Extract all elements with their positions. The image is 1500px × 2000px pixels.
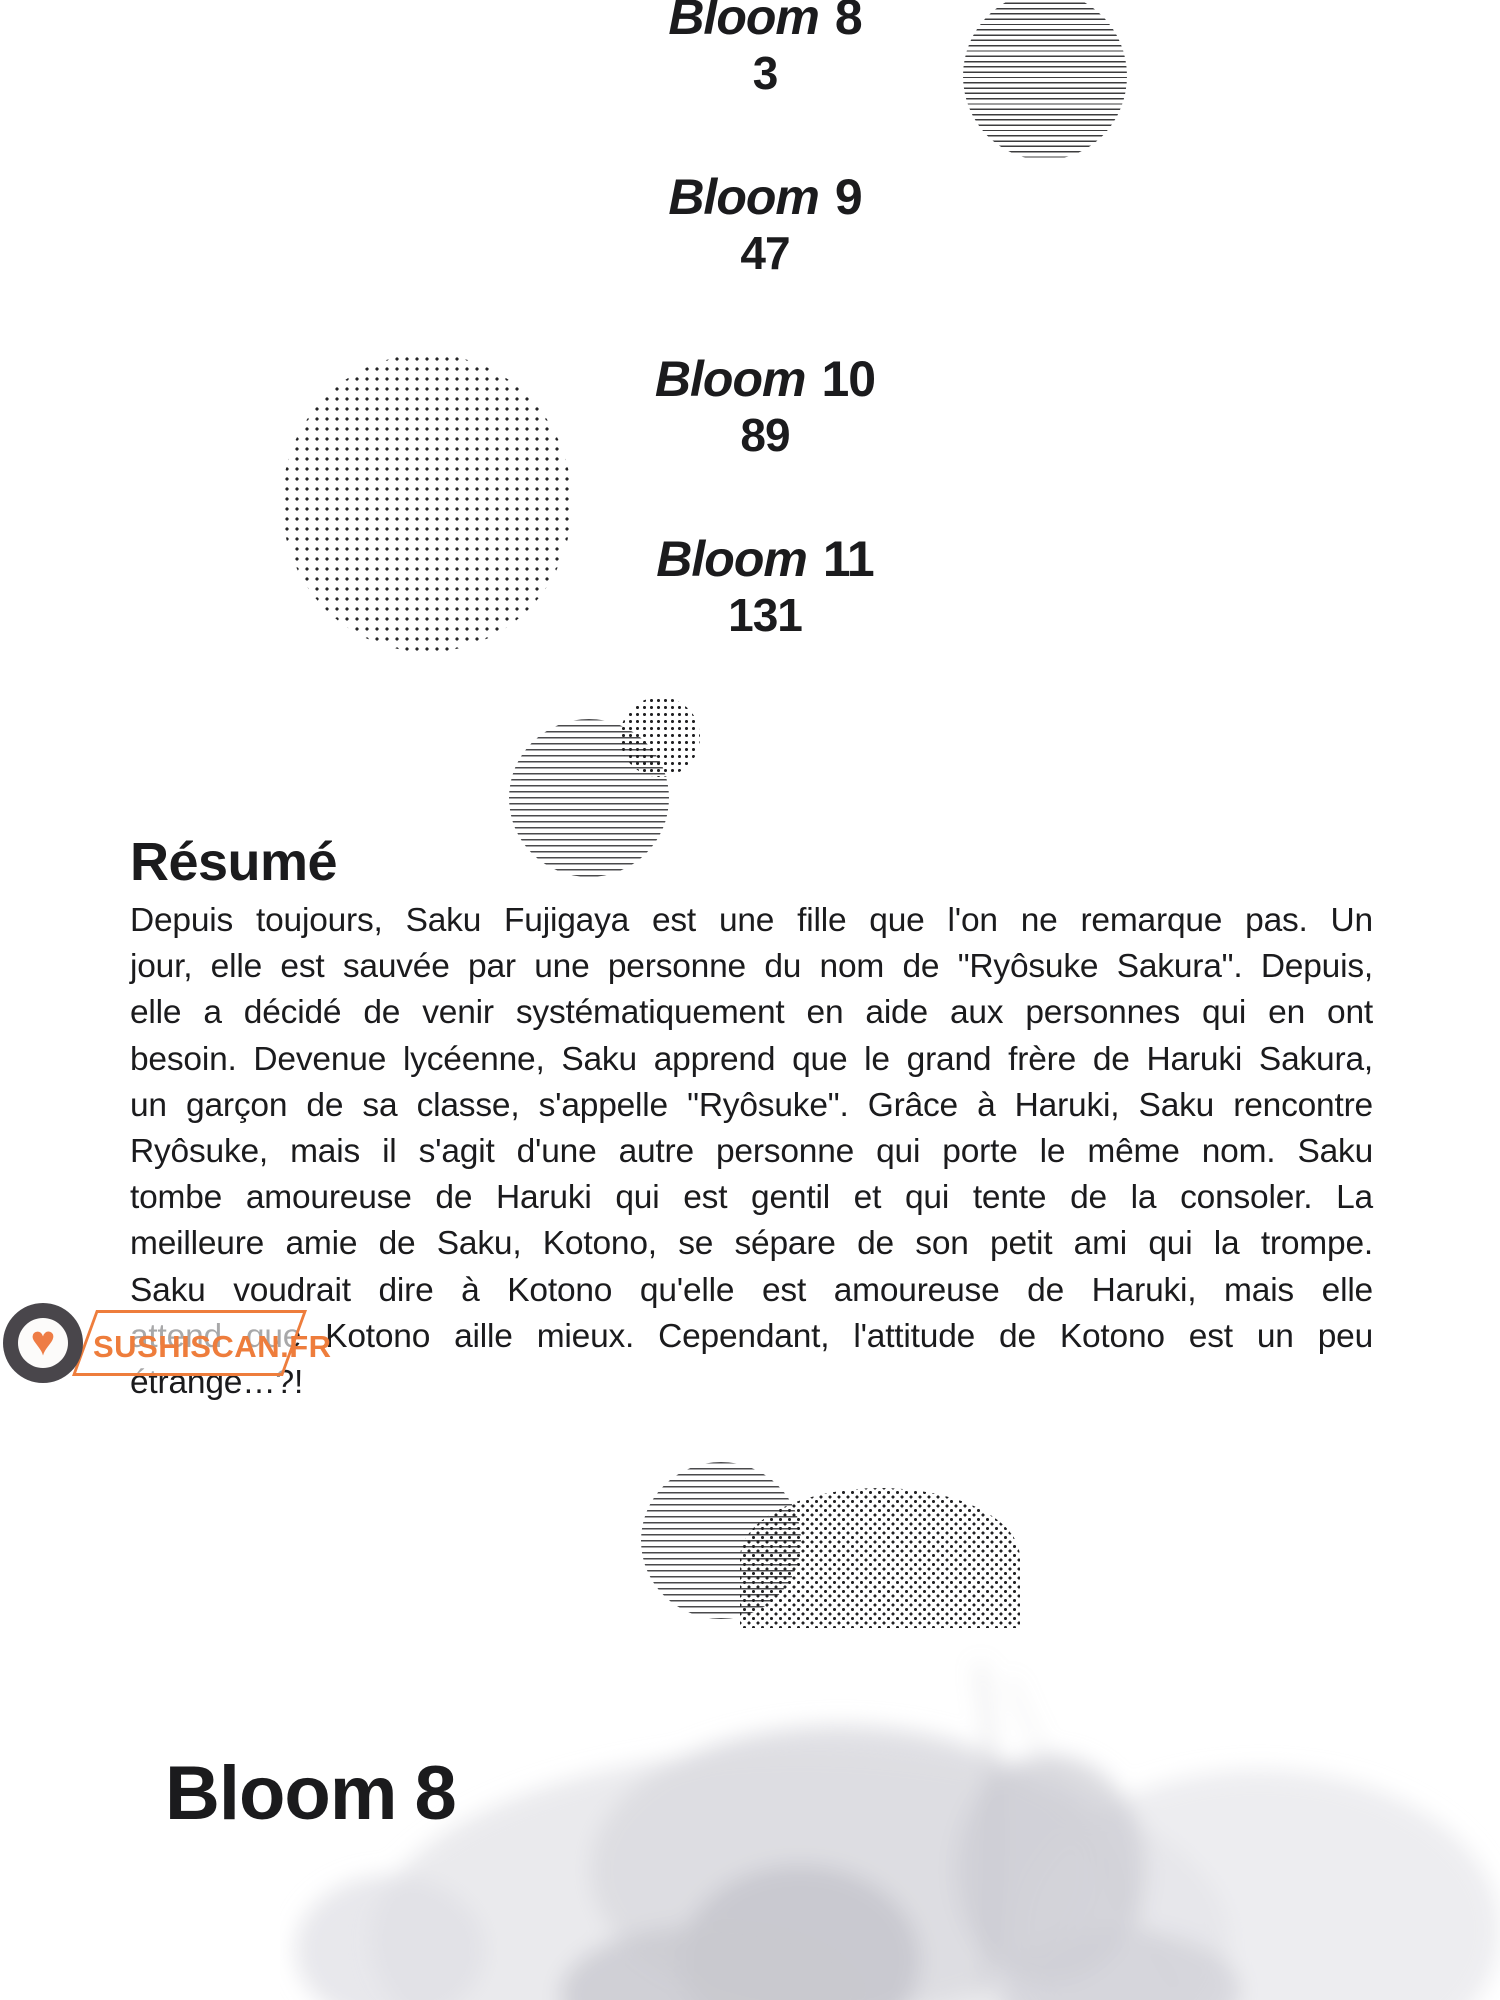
watermark-site-label: SUSHISCAN.FR	[93, 1329, 332, 1365]
toc-entry: Bloom10 89	[500, 350, 1030, 460]
footer-chapter-number: 8	[414, 1751, 455, 1836]
footer-chapter-word: Bloom	[165, 1751, 396, 1836]
resume-line: Saku voudrait dire à Kotono qu'elle est …	[130, 1268, 1373, 1314]
resume-line: un garçon de sa classe, s'appelle "Ryôsu…	[130, 1083, 1373, 1129]
resume-line: besoin. Devenue lycéenne, Saku apprend q…	[130, 1037, 1373, 1083]
resume-line: Ryôsuke, mais il s'agit d'une autre pers…	[130, 1129, 1373, 1175]
page-number: 89	[500, 410, 1030, 460]
chapter-title-word: Bloom	[668, 0, 819, 45]
resume-line: Depuis toujours, Saku Fujigaya est une f…	[130, 898, 1373, 944]
resume-line: étrange…?!	[130, 1360, 1373, 1406]
halftone-dots-circle-large	[282, 354, 572, 652]
page-number: 3	[500, 48, 1030, 98]
page-number: 47	[500, 228, 1030, 278]
page-number: 131	[500, 590, 1030, 640]
resume-line: meilleure amie de Saku, Kotono, se sépar…	[130, 1221, 1373, 1267]
chapter-title-number: 10	[821, 351, 875, 407]
chapter-title: Bloom8	[500, 0, 1030, 46]
chapter-title: Bloom11	[500, 530, 1030, 588]
halftone-dots-half-circle-bottom	[740, 1488, 1020, 1628]
manga-toc-page: Bloom8 3 Bloom9 47 Bloom10 89 Bloom11 13…	[0, 0, 1500, 2000]
resume-heading: Résumé	[130, 831, 337, 893]
resume-line: elle a décidé de venir systématiquement …	[130, 990, 1373, 1036]
toc-entry: Bloom9 47	[500, 168, 1030, 278]
sushi-roll-inner: ♥	[18, 1318, 68, 1368]
halftone-dots-circle-small	[620, 697, 700, 777]
chapter-title-number: 11	[823, 531, 874, 587]
sushi-logo-icon: ♥	[3, 1303, 83, 1383]
chapter-title: Bloom10	[500, 350, 1030, 408]
footer-chapter-title: Bloom8	[165, 1750, 456, 1837]
chapter-title-number: 9	[835, 169, 862, 225]
toc-entry: Bloom11 131	[500, 530, 1030, 640]
chapter-title: Bloom9	[500, 168, 1030, 226]
halftone-lines-circle-top-right	[963, 0, 1127, 160]
chapter-title-word: Bloom	[668, 169, 819, 225]
resume-line: tombe amoureuse de Haruki qui est gentil…	[130, 1175, 1373, 1221]
chapter-title-word: Bloom	[655, 351, 806, 407]
chapter-title-word: Bloom	[656, 531, 807, 587]
watercolor-flower-art	[280, 1610, 1500, 2000]
toc-entry: Bloom8 3	[500, 0, 1030, 98]
heart-icon: ♥	[31, 1320, 56, 1362]
chapter-title-number: 8	[835, 0, 862, 45]
resume-line: jour, elle est sauvée par une personne d…	[130, 944, 1373, 990]
